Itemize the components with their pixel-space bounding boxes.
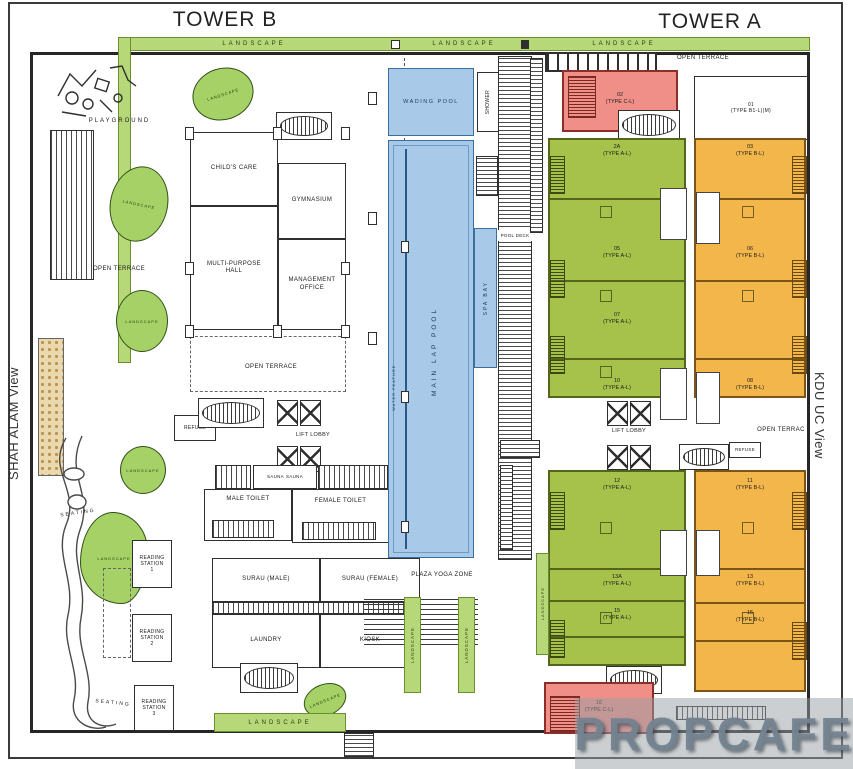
multi-purpose-hall-room: MULTI-PURPOSE HALL: [190, 206, 278, 330]
surau-female-label: SURAU (FEMALE): [342, 576, 398, 583]
staircase-b: [202, 402, 260, 424]
unit-block-orange-lower: 11 (TYPE B-L) 13 (TYPE B-L) 15 (TYPE B-L…: [694, 470, 806, 692]
unit-number: 11: [696, 478, 804, 485]
deck-hatch: [500, 465, 513, 550]
landscape-blob-label: LANDSCAPE: [309, 691, 342, 708]
lane-marker: [401, 241, 409, 253]
wading-pool: WADING POOL: [388, 68, 474, 136]
landscape-strip-top: LANDSCAPE LANDSCAPE LANDSCAPE: [118, 37, 810, 51]
unit-type: (TYPE B1-L)(M): [731, 108, 771, 114]
lift-a: [630, 401, 651, 426]
unit-label: 15 (TYPE B-L): [696, 610, 804, 624]
unit-divider: [696, 280, 804, 282]
unit-number: 15: [696, 610, 804, 617]
unit-divider: [696, 358, 804, 360]
unit-label: 10 (TYPE A-L): [550, 378, 684, 392]
main-lap-pool-label: MAIN LAP POOL: [431, 261, 439, 441]
staircase-top: [280, 116, 328, 136]
male-toilet-label: MALE TOILET: [226, 496, 269, 503]
unit-02-label: 02 (TYPE C-L): [564, 92, 676, 106]
water-feature-label: WATER FEATURE: [391, 291, 396, 411]
corridor-notch: [696, 192, 720, 244]
unit-divider: [550, 600, 684, 602]
column-marker: [341, 325, 350, 338]
landscape-strip-label: LANDSCAPE: [574, 41, 674, 47]
unit-type: (TYPE A-L): [550, 253, 684, 260]
unit-detail: [600, 366, 612, 378]
unit-detail: [600, 522, 612, 534]
gymnasium-label: GYMNASIUM: [292, 197, 333, 204]
staircase-a1: [622, 114, 676, 136]
unit-divider: [550, 358, 684, 360]
toilet-fixtures: [212, 520, 274, 538]
unit-number: 07: [550, 312, 684, 319]
shower-room: SHOWER: [477, 72, 499, 132]
balcony-hatch: [792, 492, 807, 530]
landscape-planter: LANDSCAPE: [404, 597, 421, 693]
spa-bay-label: SPA BAY: [483, 281, 489, 315]
unit-number: 12: [550, 478, 684, 485]
unit-label: 11 (TYPE B-L): [696, 478, 804, 492]
corridor-notch: [660, 368, 687, 420]
unit-type: (TYPE A-L): [550, 151, 684, 158]
management-office-label: MANAGEMENT OFFICE: [286, 277, 338, 291]
lift-a: [607, 445, 628, 470]
unit-number: 13A: [550, 574, 684, 581]
unit-label: 08 (TYPE B-L): [696, 378, 804, 392]
unit-type: (TYPE B-L): [696, 385, 804, 392]
unit-type: (TYPE B-L): [696, 253, 804, 260]
shah-alam-view-label: SHAH ALAM View: [6, 310, 21, 480]
landscape-planter-label: LANDSCAPE: [410, 627, 415, 663]
sauna-room: SAUNA SAUNA: [253, 465, 317, 489]
playground-equipment-icon: [52, 56, 137, 120]
unit-label: 03 (TYPE B-L): [696, 144, 804, 158]
surau-male-room: SURAU (MALE): [212, 558, 320, 602]
strip-marker: [391, 40, 400, 49]
unit-detail: [600, 206, 612, 218]
deck-hatch-left: [530, 58, 543, 233]
lane-line: [405, 149, 407, 549]
lane-marker: [401, 521, 409, 533]
laundry-label: LAUNDRY: [250, 637, 281, 644]
playground-label: PLAYGROUND: [62, 118, 177, 125]
locker-row: [318, 465, 388, 489]
surau-female-room: SURAU (FEMALE): [320, 558, 420, 602]
lift-lobby-a-label: LIFT LOBBY: [598, 428, 660, 435]
seating-path: [36, 430, 166, 740]
column-marker: [185, 325, 194, 338]
lift-lobby-b-label: LIFT LOBBY: [283, 432, 343, 439]
unit-detail: [742, 290, 754, 302]
unit-number: 06: [696, 246, 804, 253]
open-terrace-label: OPEN TERRACE: [80, 266, 158, 273]
landscape-planter-label: LANDSCAPE: [464, 627, 469, 663]
unit-divider: [550, 636, 684, 638]
unit-divider: [696, 640, 804, 642]
unit-divider: [696, 602, 804, 604]
exterior-stairs: [344, 733, 374, 757]
unit-number: 10: [550, 378, 684, 385]
floor-plan: TOWER B TOWER A SHAH ALAM View KDU UC Vi…: [0, 0, 853, 769]
lift-a: [630, 445, 651, 470]
trellis-deck: [50, 130, 94, 280]
unit-block-orange-upper: 03 (TYPE B-L) 06 (TYPE B-L) 08 (TYPE B-L…: [694, 138, 806, 398]
landscape-blob-label: LANDSCAPE: [125, 319, 158, 324]
unit-label: 13 (TYPE B-L): [696, 574, 804, 588]
unit-type: (TYPE B-L): [696, 151, 804, 158]
refuse-a-label: REFUSE: [735, 447, 755, 452]
tower-b-title: TOWER B: [140, 8, 310, 32]
column-marker: [273, 127, 282, 140]
column-marker: [368, 332, 377, 345]
gymnasium-room: GYMNASIUM: [278, 163, 346, 239]
unit-number: 2A: [550, 144, 684, 151]
pool-deck-label: POOL DECK: [501, 233, 530, 238]
pool-steps: [476, 156, 498, 196]
wading-pool-label: WADING POOL: [403, 99, 459, 106]
tower-a-title: TOWER A: [625, 10, 795, 34]
unit-type: (TYPE C-L): [564, 99, 676, 106]
deck-comb-top: [545, 52, 657, 72]
childs-care-label: CHILD'S CARE: [211, 165, 257, 172]
lift-b: [277, 400, 298, 426]
landscape-strip-label: LANDSCAPE: [169, 41, 339, 47]
unit-type: (TYPE A-L): [550, 581, 684, 588]
unit-detail: [600, 290, 612, 302]
watermark-text: PROPCAFE: [574, 707, 853, 761]
unit-block-green-upper: 2A (TYPE A-L) 05 (TYPE A-L) 07 (TYPE A-L…: [548, 138, 686, 398]
column-marker: [368, 212, 377, 225]
lift-a: [607, 401, 628, 426]
balcony-hatch: [550, 336, 565, 374]
balcony-hatch: [792, 336, 807, 374]
unit-type: (TYPE A-L): [550, 319, 684, 326]
lift-b: [300, 400, 321, 426]
unit-label: 2A (TYPE A-L): [550, 144, 684, 158]
column-marker: [368, 92, 377, 105]
laundry-room: LAUNDRY: [212, 614, 320, 668]
unit-type: (TYPE B-L): [696, 581, 804, 588]
landscape-strip-bottom: LANDSCAPE: [214, 713, 346, 732]
corridor-notch: [696, 530, 720, 576]
column-marker: [341, 262, 350, 275]
sauna-label: SAUNA: [267, 474, 284, 479]
column-marker: [185, 127, 194, 140]
landscape-blob: LANDSCAPE: [116, 290, 168, 352]
balcony-hatch: [550, 492, 565, 530]
staircase-a2: [683, 448, 725, 466]
balcony-hatch: [550, 620, 565, 658]
unit-divider: [550, 280, 684, 282]
unit-number: 05: [550, 246, 684, 253]
unit-type: (TYPE B-L): [696, 617, 804, 624]
unit-number: 03: [696, 144, 804, 151]
corridor-notch: [660, 530, 687, 576]
column-marker: [273, 325, 282, 338]
landscape-strip-label: LANDSCAPE: [248, 720, 311, 726]
sauna-label: SAUNA: [286, 474, 303, 479]
female-toilet-label: FEMALE TOILET: [315, 498, 367, 505]
open-terrace-a-right-label: OPEN TERRAC: [752, 427, 810, 434]
corridor-notch: [660, 188, 687, 240]
balcony-hatch: [550, 260, 565, 298]
column-marker: [341, 127, 350, 140]
landscape-planter: LANDSCAPE: [458, 597, 475, 693]
childs-care-room: CHILD'S CARE: [190, 132, 278, 206]
unit-block-green-lower: 12 (TYPE A-L) 13A (TYPE A-L) 15 (TYPE A-…: [548, 470, 686, 666]
unit-label: 05 (TYPE A-L): [550, 246, 684, 260]
open-terrace-outline: [190, 336, 346, 392]
unit-number: 08: [696, 378, 804, 385]
unit-number: 02: [564, 92, 676, 99]
balcony-hatch: [550, 156, 565, 194]
unit-label: 12 (TYPE A-L): [550, 478, 684, 492]
spa-bay: SPA BAY: [474, 228, 497, 368]
surau-male-label: SURAU (MALE): [242, 576, 290, 583]
unit-label: 06 (TYPE B-L): [696, 246, 804, 260]
landscape-strip-label: LANDSCAPE: [414, 41, 514, 47]
shower-label: SHOWER: [485, 90, 491, 114]
main-lap-pool: MAIN LAP POOL WATER FEATURE: [388, 140, 474, 558]
multi-purpose-hall-label: MULTI-PURPOSE HALL: [199, 261, 269, 275]
unit-type: (TYPE A-L): [550, 385, 684, 392]
landscape-strip-side: LANDSCAPE: [536, 553, 549, 655]
unit-type: (TYPE A-L): [550, 615, 684, 622]
lane-marker: [401, 391, 409, 403]
kdu-uc-view-label: KDU UC View: [812, 372, 827, 512]
plaza-yoga-zone-label: PLAZA YOGA ZONE: [403, 572, 481, 579]
deck-hatch: [500, 440, 540, 458]
landscape-strip-side-label: LANDSCAPE: [540, 587, 545, 620]
staircase-b2: [244, 667, 294, 689]
open-terrace-a-label: OPEN TERRACE: [662, 55, 744, 62]
unit-number: 13: [696, 574, 804, 581]
landscape-blob-label: LANDSCAPE: [122, 198, 156, 210]
unit-01: 01 (TYPE B1-L)(M): [694, 76, 808, 140]
unit-type: (TYPE B-L): [696, 485, 804, 492]
landscape-blob-label: LANDSCAPE: [206, 86, 239, 101]
watermark-band: PROPCAFE: [575, 698, 853, 769]
balcony-hatch: [792, 156, 807, 194]
unit-label: 13A (TYPE A-L): [550, 574, 684, 588]
unit-type: (TYPE A-L): [550, 485, 684, 492]
unit-label: 15 (TYPE A-L): [550, 608, 684, 622]
unit-number: 15: [550, 608, 684, 615]
toilet-fixtures: [302, 522, 376, 540]
column-marker: [185, 262, 194, 275]
balcony-hatch: [792, 622, 807, 660]
unit-label: 07 (TYPE A-L): [550, 312, 684, 326]
strip-marker: [521, 40, 529, 49]
pool-deck-label-box: POOL DECK: [497, 230, 533, 241]
management-office-room: MANAGEMENT OFFICE: [278, 239, 346, 330]
balcony-hatch: [792, 260, 807, 298]
unit-detail: [742, 522, 754, 534]
unit-detail: [742, 206, 754, 218]
refuse-room-a: REFUSE: [729, 442, 761, 458]
locker-row: [215, 465, 251, 489]
unit-01-label: 01 (TYPE B1-L)(M): [731, 102, 771, 114]
